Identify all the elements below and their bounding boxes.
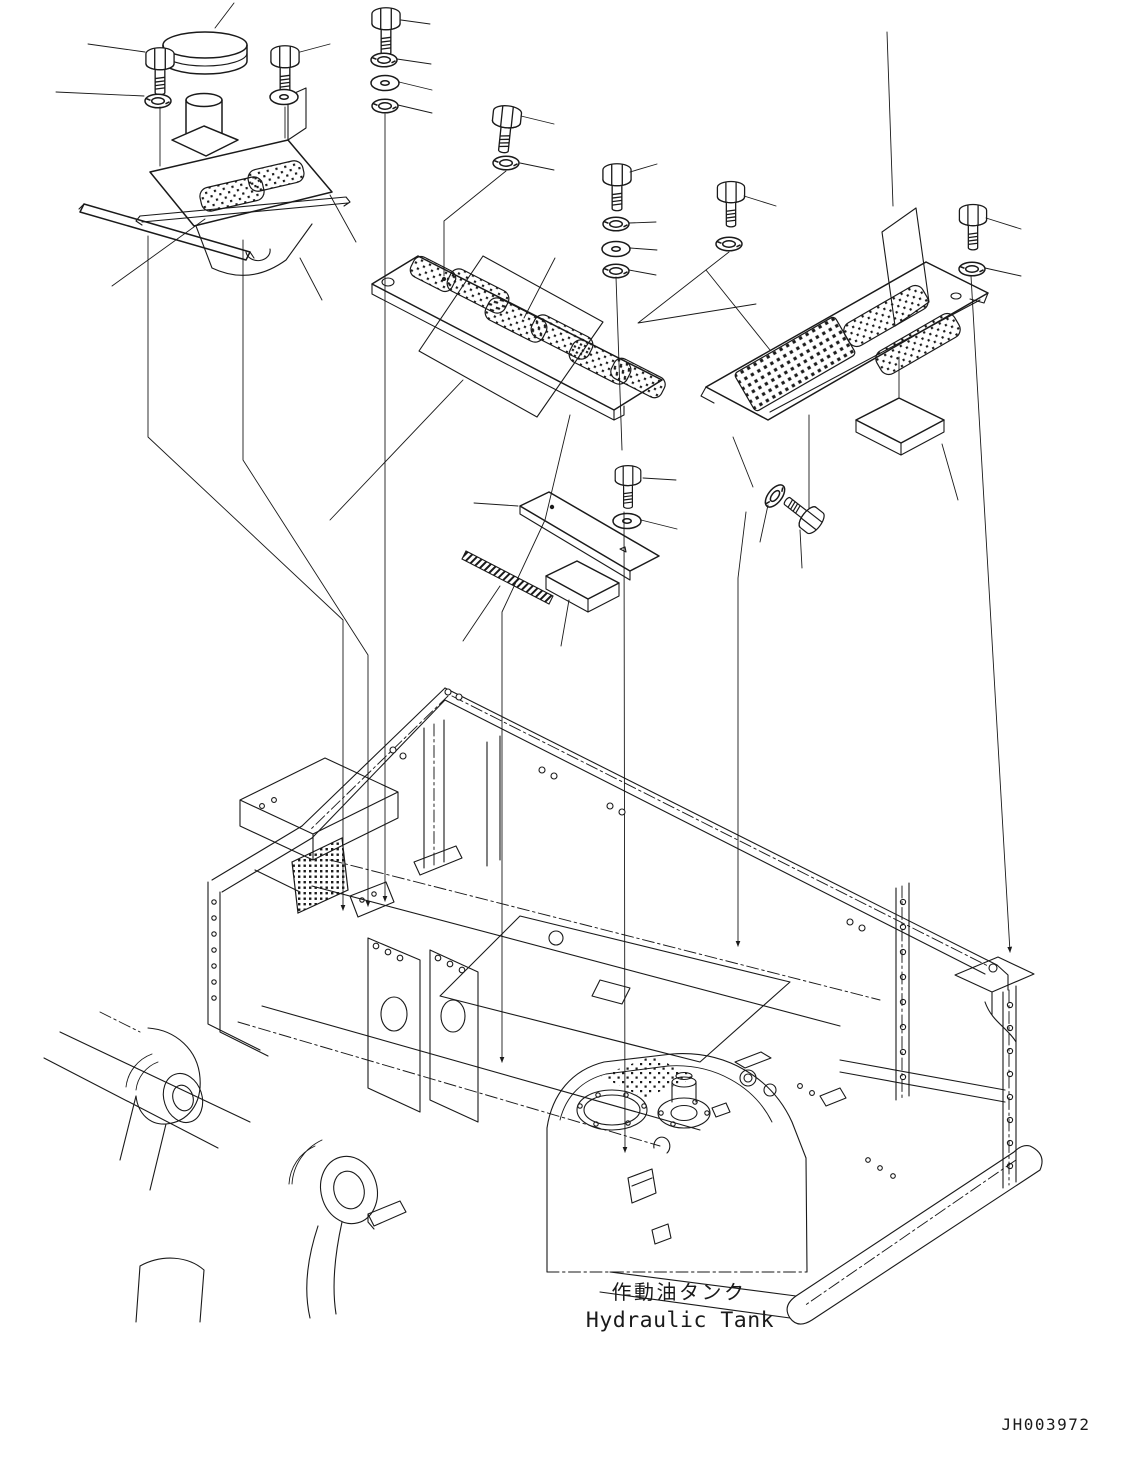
flat-washer-icon <box>270 90 298 105</box>
leader-lines-long <box>148 114 1010 1152</box>
breather-cap-icon <box>163 3 247 74</box>
manhole-cover-icon <box>577 1090 647 1130</box>
filler-cover-plate <box>136 140 356 300</box>
hydraulic-tank <box>547 1054 807 1272</box>
bolt-washer-stack <box>371 8 432 113</box>
hex-bolt-icon <box>615 466 641 509</box>
bolt-holes <box>212 900 216 1000</box>
filler-neck-icon <box>172 94 238 157</box>
hex-bolt-icon <box>778 490 827 536</box>
spring-washer-icon <box>762 482 789 511</box>
sponge-pad-icon <box>546 561 619 612</box>
side-box <box>240 758 398 913</box>
bulkhead-plates <box>368 938 478 1122</box>
grille-icon <box>292 838 348 913</box>
flat-washer-icon <box>613 514 641 529</box>
spring-washer-icon <box>145 94 171 108</box>
hex-bolt-icon <box>146 48 174 95</box>
hex-bolt-icon <box>959 204 986 249</box>
bolt-washer-stack <box>602 164 657 278</box>
parts-diagram-sheet: 作動油タンク Hydraulic Tank JH003972 <box>0 0 1146 1460</box>
tank-label-english: Hydraulic Tank <box>586 1308 774 1333</box>
top-left-filler-cover-assembly <box>56 3 356 300</box>
boom-mounting-bracket <box>289 1140 385 1318</box>
spring-washer-icon <box>959 262 985 276</box>
seal-strip-icon <box>462 551 553 604</box>
spring-washer-icon <box>716 237 742 251</box>
right-cover-plate <box>638 32 1021 568</box>
hex-bolt-icon <box>717 181 744 226</box>
bolt-washer-stack <box>442 104 554 281</box>
drawing-number: JH003972 <box>1001 1415 1090 1434</box>
exploded-parts-drawing: 作動油タンク Hydraulic Tank JH003972 <box>0 0 1146 1460</box>
revolving-frame <box>44 688 1042 1324</box>
tank-label-japanese: 作動油タンク <box>612 1280 747 1304</box>
hex-bolt-icon <box>271 46 299 93</box>
boom-mounting-bracket <box>120 1028 209 1190</box>
small-cover-plate-assembly <box>462 466 677 646</box>
sponge-pad-icon <box>856 357 958 500</box>
